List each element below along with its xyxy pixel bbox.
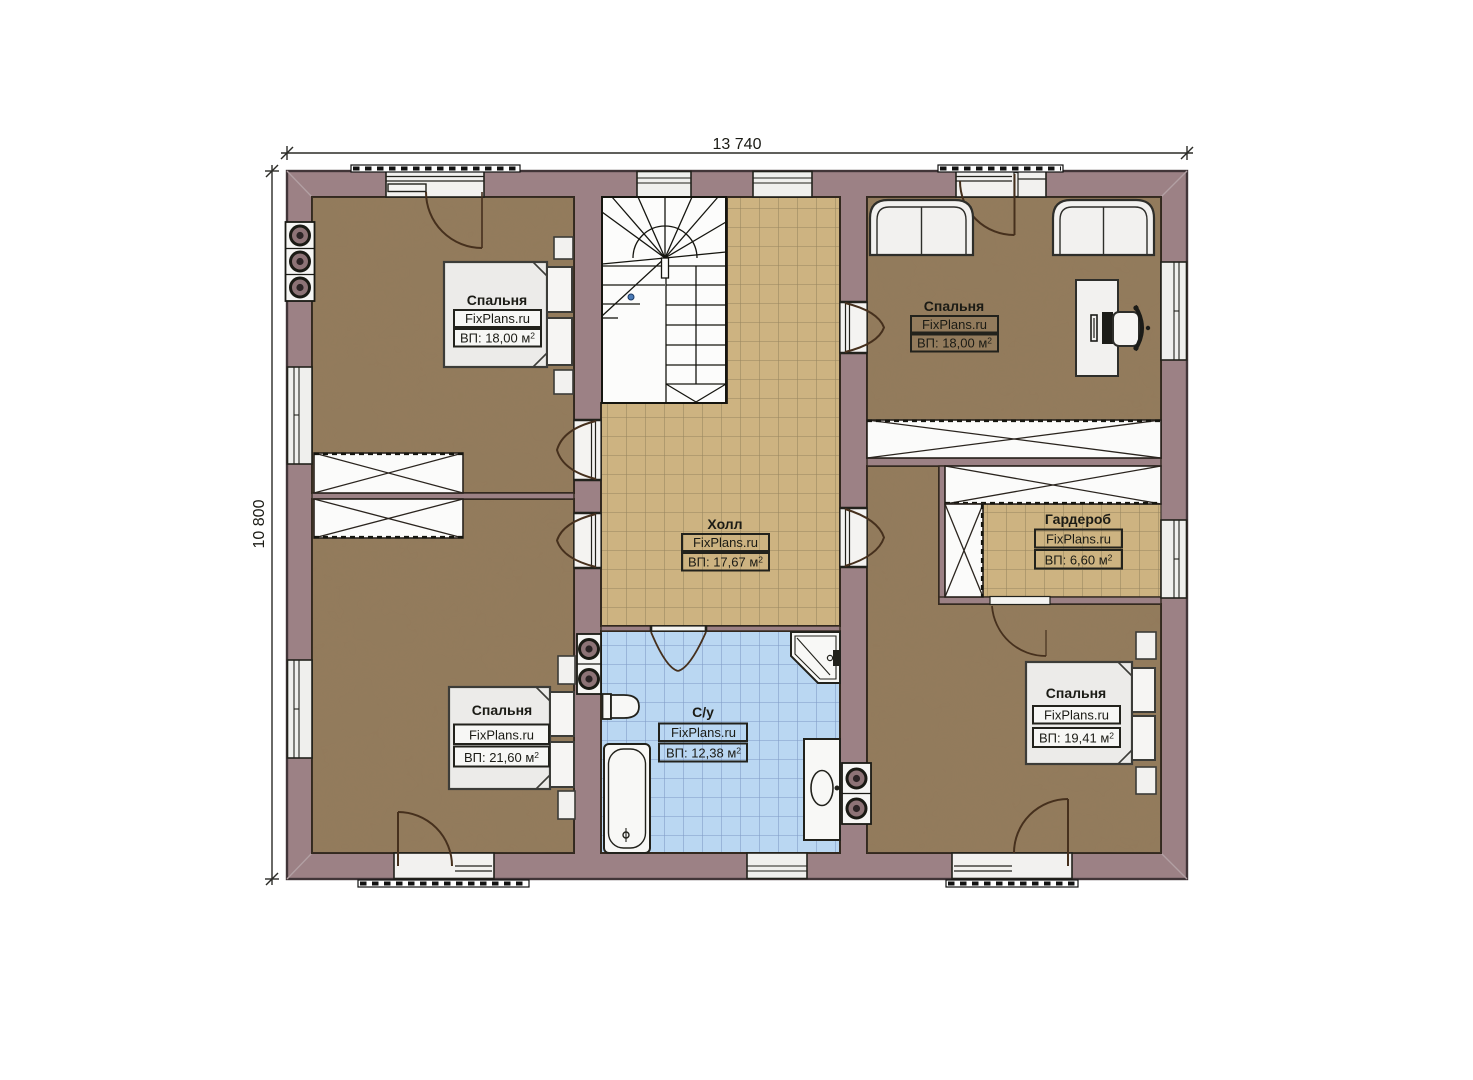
- svg-text:ВП: 19,41 м2: ВП: 19,41 м2: [1039, 731, 1114, 746]
- svg-text:Спальня: Спальня: [472, 702, 532, 718]
- svg-text:FixPlans.ru: FixPlans.ru: [922, 317, 987, 332]
- svg-text:Спальня: Спальня: [467, 292, 527, 308]
- svg-text:10 800: 10 800: [251, 499, 268, 548]
- svg-text:Холл: Холл: [707, 516, 742, 532]
- svg-text:Гардероб: Гардероб: [1045, 511, 1112, 527]
- svg-text:FixPlans.ru: FixPlans.ru: [1046, 532, 1111, 547]
- svg-text:ВП: 6,60 м2: ВП: 6,60 м2: [1045, 553, 1113, 568]
- svg-text:С/у: С/у: [692, 704, 714, 720]
- svg-text:FixPlans.ru: FixPlans.ru: [465, 311, 530, 326]
- svg-text:13 740: 13 740: [713, 136, 762, 153]
- svg-text:FixPlans.ru: FixPlans.ru: [693, 535, 758, 550]
- svg-text:Спальня: Спальня: [1046, 685, 1106, 701]
- svg-text:ВП: 12,38 м2: ВП: 12,38 м2: [666, 746, 741, 761]
- svg-text:ВП: 18,00 м2: ВП: 18,00 м2: [460, 331, 535, 346]
- svg-text:ВП: 21,60 м2: ВП: 21,60 м2: [464, 750, 539, 765]
- svg-text:FixPlans.ru: FixPlans.ru: [671, 725, 736, 740]
- svg-text:Спальня: Спальня: [924, 298, 984, 314]
- svg-text:FixPlans.ru: FixPlans.ru: [1044, 708, 1109, 723]
- svg-text:ВП: 18,00 м2: ВП: 18,00 м2: [917, 336, 992, 351]
- svg-text:ВП: 17,67 м2: ВП: 17,67 м2: [688, 555, 763, 570]
- svg-text:FixPlans.ru: FixPlans.ru: [469, 728, 534, 743]
